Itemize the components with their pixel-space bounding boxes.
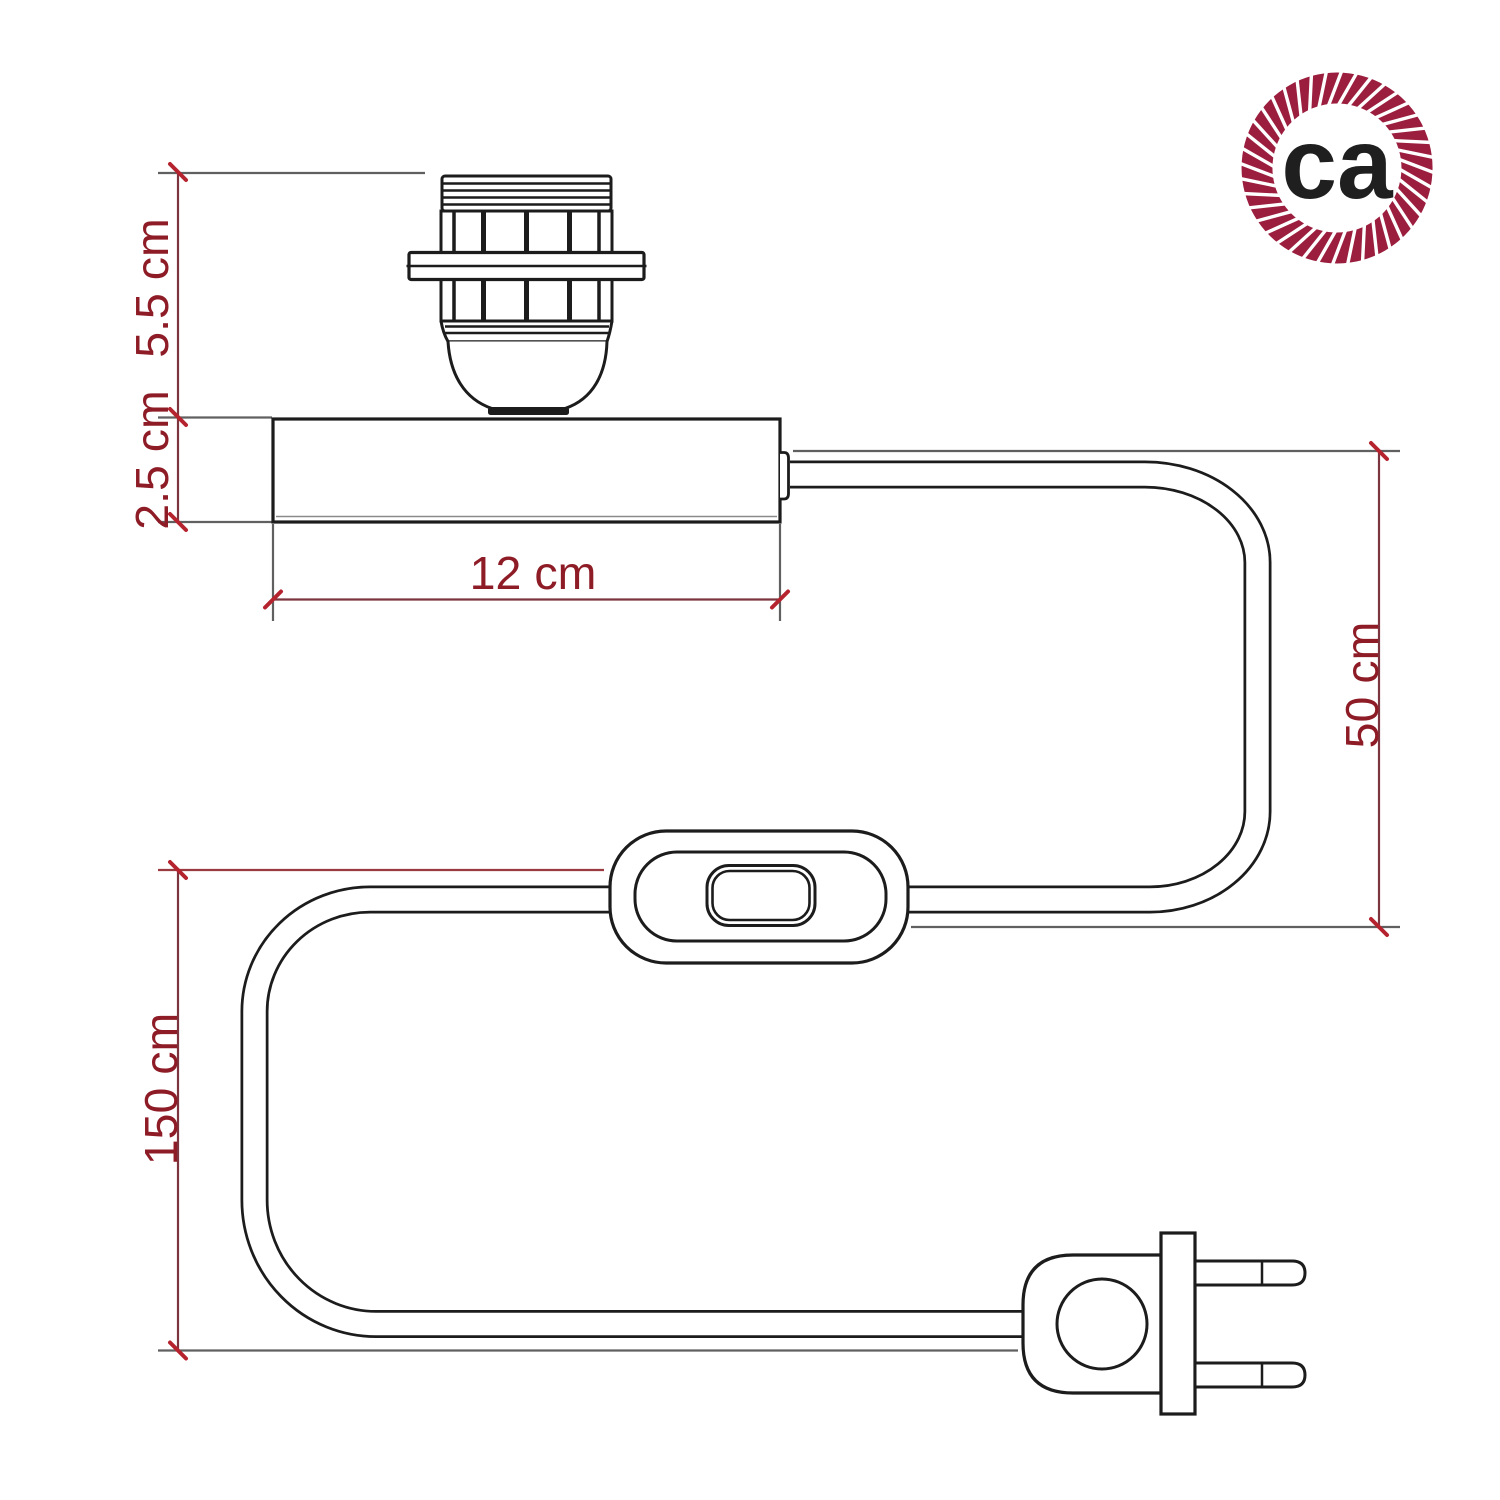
svg-text:12 cm: 12 cm [470,547,597,599]
svg-text:50 cm: 50 cm [1336,622,1388,749]
svg-text:5.5 cm: 5.5 cm [126,218,178,358]
svg-text:150 cm: 150 cm [135,1013,187,1166]
svg-text:ca: ca [1281,108,1394,220]
svg-text:2.5 cm: 2.5 cm [126,390,178,530]
